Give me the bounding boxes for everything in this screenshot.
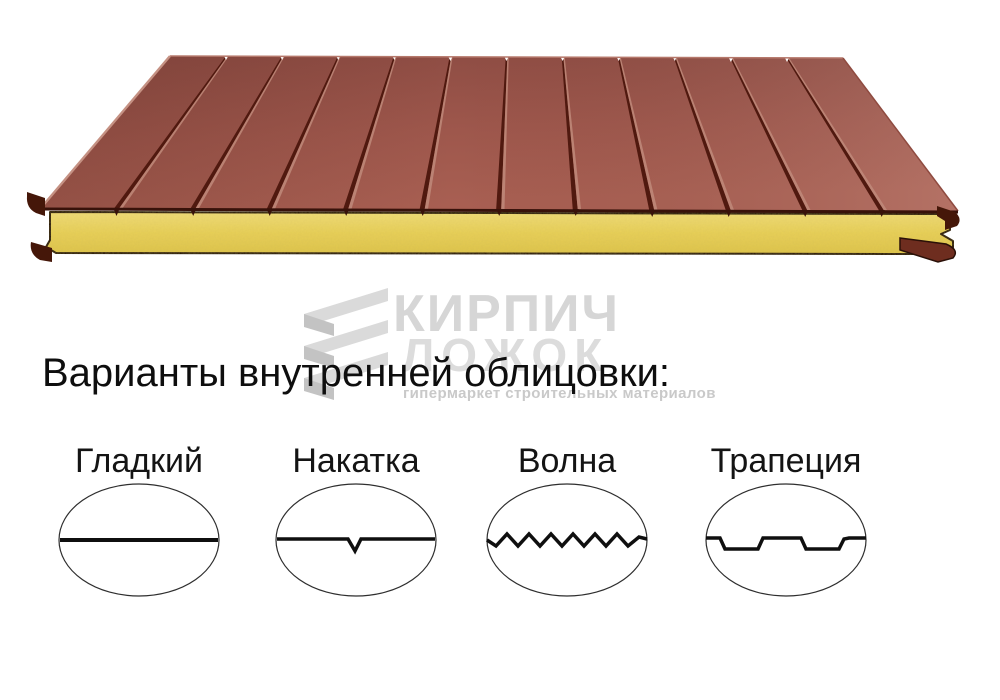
option-label-trapezoid: Трапеция: [676, 444, 896, 478]
profile-wave-line: [487, 534, 647, 546]
profile-diagram-trapezoid: [701, 480, 871, 600]
page-title: Варианты внутренней облицовки:: [42, 352, 670, 394]
profile-diagram-smooth: [54, 480, 224, 600]
profile-trapezoid-line: [706, 538, 866, 549]
page: КИРПИЧ ЛОЖОК гипермаркет строительных ма…: [0, 0, 1000, 700]
panel-facing-top: [40, 55, 958, 217]
profile-diagram-notched: [271, 480, 441, 600]
panel-core-mineral-wool: [46, 212, 953, 254]
profile-diagram-wave: [482, 480, 652, 600]
lock-top-left: [27, 192, 45, 216]
sandwich-panel-image: [0, 0, 1000, 280]
profile-notch-line: [277, 539, 435, 551]
option-label-wave: Волна: [457, 444, 677, 478]
option-label-notched: Накатка: [246, 444, 466, 478]
option-label-smooth: Гладкий: [29, 444, 249, 478]
